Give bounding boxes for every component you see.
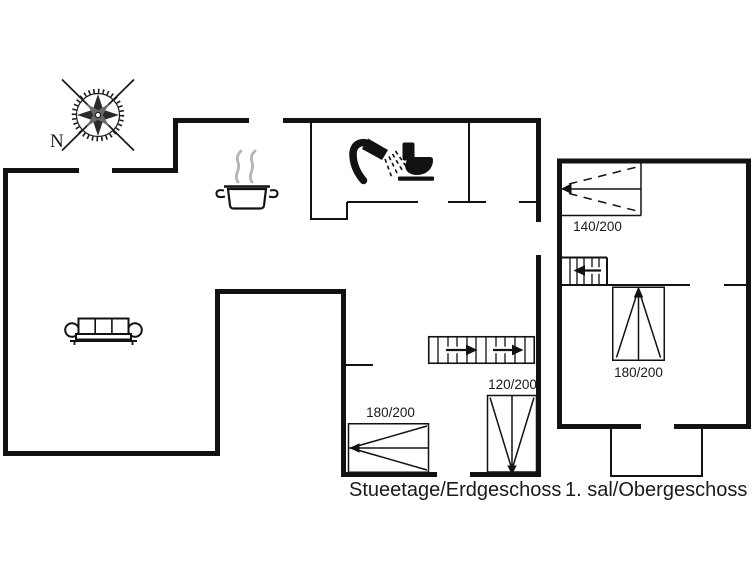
- compass-north-label: N: [50, 132, 64, 151]
- stairs-down-icon: [570, 258, 601, 284]
- compass-rose-icon: [62, 80, 134, 151]
- sofa-icon: [65, 319, 142, 346]
- shower-icon: [353, 139, 407, 181]
- upper-floor-label: 1. sal/Obergeschoss: [565, 480, 745, 500]
- bed-size-label-180-200-upper: 180/200: [606, 366, 671, 380]
- bed-120x200: [488, 396, 537, 475]
- ground-floor-exterior-walls: [3, 118, 541, 477]
- cooking-pot-icon: [216, 151, 277, 209]
- bed-size-label-140-200: 140/200: [565, 220, 630, 234]
- stairs-up-icon: [429, 337, 535, 364]
- balcony-outline: [610, 429, 703, 476]
- ground-floor-label: Stueetage/Erdgeschoss: [349, 480, 549, 500]
- bed-180x200-upper: [613, 287, 665, 361]
- bed-140x200: [561, 163, 641, 216]
- bed-size-label-120-200: 120/200: [480, 378, 545, 392]
- bed-size-label-180-200-ground: 180/200: [358, 406, 423, 420]
- bed-180x200-ground: [349, 424, 429, 473]
- floor-plan: N 140/200 180/200 120/200 180/200 Stueet…: [0, 0, 755, 566]
- toilet-icon: [398, 143, 434, 181]
